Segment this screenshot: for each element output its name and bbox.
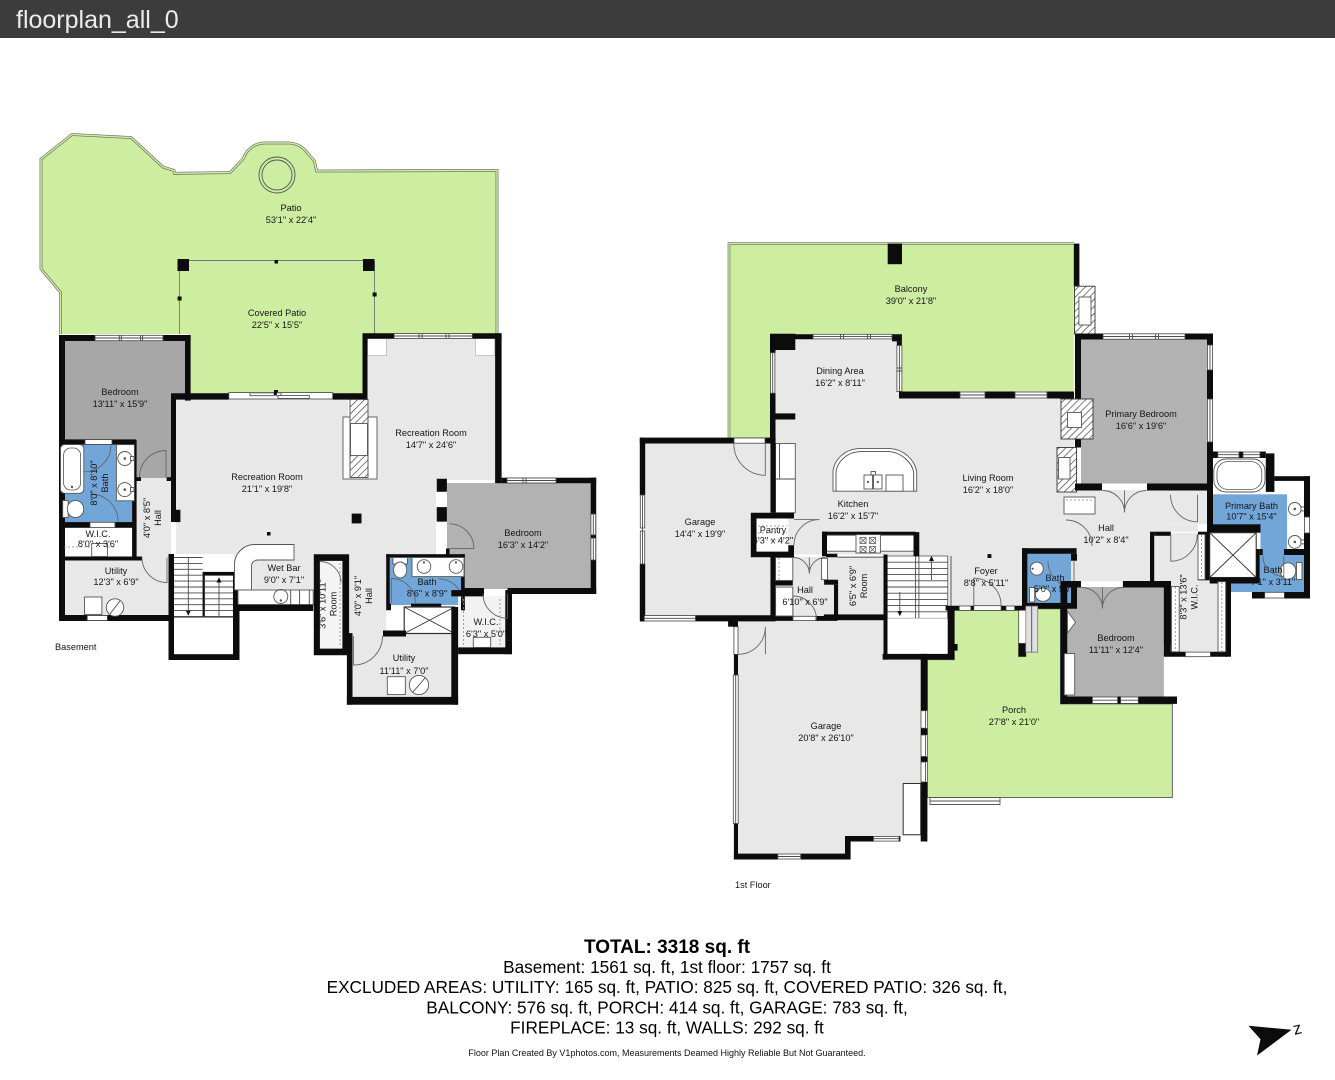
svg-text:Room: Room bbox=[859, 573, 869, 598]
svg-text:Utility: Utility bbox=[105, 566, 128, 576]
svg-text:Bedroom: Bedroom bbox=[1097, 633, 1135, 643]
svg-text:12'3" x 6'9": 12'3" x 6'9" bbox=[93, 577, 138, 587]
svg-text:4'3" x 4'2": 4'3" x 4'2" bbox=[753, 536, 793, 546]
svg-text:11'11" x 7'0": 11'11" x 7'0" bbox=[379, 666, 428, 676]
svg-text:BALCONY: 576 sq. ft, PORCH: 41: BALCONY: 576 sq. ft, PORCH: 414 sq. ft, … bbox=[426, 998, 907, 1018]
svg-text:Living Room: Living Room bbox=[962, 473, 1013, 483]
svg-text:6'3" x 5'0": 6'3" x 5'0" bbox=[466, 629, 506, 639]
svg-text:Recreation Room: Recreation Room bbox=[395, 428, 467, 438]
svg-text:FIREPLACE: 13 sq. ft, WALLS: 2: FIREPLACE: 13 sq. ft, WALLS: 292 sq. ft bbox=[510, 1018, 824, 1038]
svg-text:21'1" x 19'8": 21'1" x 19'8" bbox=[242, 484, 292, 494]
svg-text:Bath: Bath bbox=[100, 474, 110, 493]
svg-text:16'6" x 19'6": 16'6" x 19'6" bbox=[1116, 421, 1166, 431]
svg-text:Dining Area: Dining Area bbox=[816, 366, 864, 376]
svg-text:Garage: Garage bbox=[811, 721, 842, 731]
svg-text:Kitchen: Kitchen bbox=[838, 499, 869, 509]
svg-text:floorplan_all_0: floorplan_all_0 bbox=[16, 6, 179, 34]
svg-text:Basement: Basement bbox=[55, 642, 97, 652]
svg-text:8'0" x 3'6": 8'0" x 3'6" bbox=[78, 539, 118, 549]
svg-text:6'5" x 6'9": 6'5" x 6'9" bbox=[848, 566, 858, 606]
svg-text:3'6" x 10'11": 3'6" x 10'11" bbox=[318, 579, 328, 629]
svg-text:Covered Patio: Covered Patio bbox=[248, 308, 306, 318]
svg-text:8'3" x 13'6": 8'3" x 13'6" bbox=[1178, 574, 1188, 619]
svg-text:9'0" x 7'1": 9'0" x 7'1" bbox=[264, 575, 304, 585]
svg-text:1st Floor: 1st Floor bbox=[735, 880, 771, 890]
svg-text:8'6" x 8'9": 8'6" x 8'9" bbox=[407, 589, 447, 599]
svg-text:6'10" x 6'9": 6'10" x 6'9" bbox=[782, 597, 827, 607]
svg-text:20'8" x 26'10": 20'8" x 26'10" bbox=[798, 733, 854, 743]
svg-text:Hall: Hall bbox=[1098, 523, 1114, 533]
svg-text:Primary Bedroom: Primary Bedroom bbox=[1105, 409, 1177, 419]
svg-text:Foyer: Foyer bbox=[974, 566, 998, 576]
svg-text:27'8" x 21'0": 27'8" x 21'0" bbox=[989, 717, 1039, 727]
svg-text:Utility: Utility bbox=[393, 653, 416, 663]
svg-text:W.I.C.: W.I.C. bbox=[85, 529, 110, 539]
svg-text:16'2" x 8'11": 16'2" x 8'11" bbox=[815, 378, 865, 388]
svg-text:13'11" x 15'9": 13'11" x 15'9" bbox=[93, 399, 148, 409]
svg-text:16'2" x 15'7": 16'2" x 15'7" bbox=[828, 511, 878, 521]
svg-text:Porch: Porch bbox=[1002, 705, 1026, 715]
svg-text:Patio: Patio bbox=[281, 203, 302, 213]
svg-text:4'0" x 8'5": 4'0" x 8'5" bbox=[142, 498, 152, 538]
svg-text:Wet Bar: Wet Bar bbox=[267, 563, 300, 573]
svg-text:Hall: Hall bbox=[364, 588, 374, 604]
svg-text:Balcony: Balcony bbox=[895, 284, 928, 294]
svg-text:EXCLUDED AREAS: UTILITY: 165 s: EXCLUDED AREAS: UTILITY: 165 sq. ft, PAT… bbox=[327, 977, 1008, 997]
svg-text:Floor Plan Created By V1photos: Floor Plan Created By V1photos.com, Meas… bbox=[468, 1048, 865, 1058]
svg-text:53'1" x 22'4": 53'1" x 22'4" bbox=[266, 215, 316, 225]
svg-text:Room: Room bbox=[329, 591, 339, 616]
svg-text:Bedroom: Bedroom bbox=[504, 528, 542, 538]
svg-text:Hall: Hall bbox=[797, 585, 813, 595]
svg-text:22'5" x 15'5": 22'5" x 15'5" bbox=[252, 320, 302, 330]
svg-text:Bedroom: Bedroom bbox=[101, 387, 139, 397]
svg-text:14'7" x 24'6": 14'7" x 24'6" bbox=[406, 440, 456, 450]
svg-text:TOTAL: 3318 sq. ft: TOTAL: 3318 sq. ft bbox=[584, 937, 751, 958]
svg-text:Basement: 1561 sq. ft, 1st flo: Basement: 1561 sq. ft, 1st floor: 1757 s… bbox=[503, 957, 831, 977]
svg-text:8'8" x 5'11": 8'8" x 5'11" bbox=[964, 578, 1009, 588]
svg-text:39'0" x 21'8": 39'0" x 21'8" bbox=[886, 296, 936, 306]
svg-text:Hall: Hall bbox=[153, 510, 163, 526]
svg-text:W.I.C.: W.I.C. bbox=[473, 617, 498, 627]
svg-text:Garage: Garage bbox=[685, 517, 716, 527]
svg-text:8'0" x 8'10": 8'0" x 8'10" bbox=[89, 460, 99, 505]
svg-text:Pantry: Pantry bbox=[760, 525, 787, 535]
svg-text:16'2" x 18'0": 16'2" x 18'0" bbox=[963, 485, 1013, 495]
svg-text:W.I.C.: W.I.C. bbox=[1190, 584, 1200, 609]
svg-text:16'3" x 14'2": 16'3" x 14'2" bbox=[498, 540, 548, 550]
svg-text:11'11" x 12'4": 11'11" x 12'4" bbox=[1089, 645, 1143, 655]
svg-text:14'4" x 19'9": 14'4" x 19'9" bbox=[675, 529, 725, 539]
svg-text:Primary Bath: Primary Bath bbox=[1225, 501, 1278, 511]
svg-text:4'0" x 9'1": 4'0" x 9'1" bbox=[353, 576, 363, 616]
svg-text:Recreation Room: Recreation Room bbox=[231, 472, 303, 482]
svg-text:Bath: Bath bbox=[418, 577, 437, 587]
svg-text:10'7" x 15'4": 10'7" x 15'4" bbox=[1226, 512, 1276, 522]
